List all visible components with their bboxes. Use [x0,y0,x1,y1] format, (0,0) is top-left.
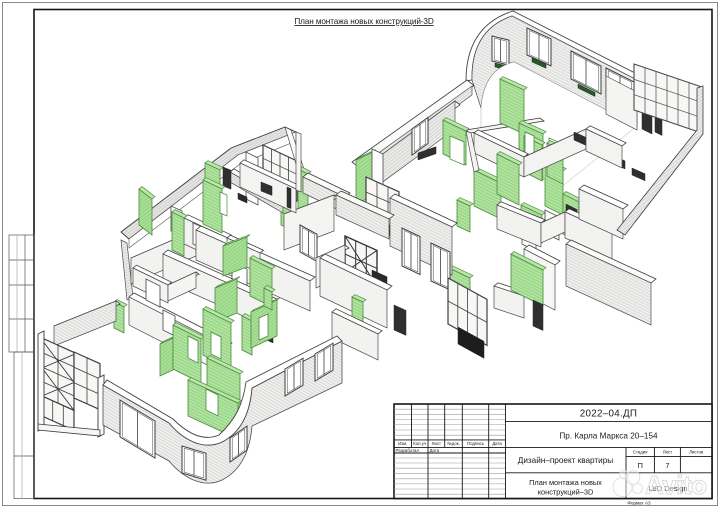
svg-text:Дата: Дата [430,448,440,453]
svg-text:План монтажа новых: План монтажа новых [529,478,602,487]
svg-text:Формат А3: Формат А3 [627,501,651,506]
svg-text:П: П [638,461,643,470]
svg-text:Лист: Лист [432,441,441,446]
svg-text:Стадия: Стадия [633,450,648,455]
svg-text:План монтажа новых конструкций: План монтажа новых конструкций-3D [294,17,434,26]
svg-text:Кол.уч: Кол.уч [413,441,426,446]
svg-text:2022–04.ДП: 2022–04.ДП [580,409,638,420]
svg-text:Лист: Лист [663,450,672,455]
svg-text:Разработал: Разработал [396,448,420,453]
svg-text:Подпись: Подпись [467,441,485,446]
svg-text:конструкций–3D: конструкций–3D [538,487,594,496]
svg-text:Дата: Дата [492,441,502,446]
svg-text:Дизайн–проект квартиры: Дизайн–проект квартиры [518,456,614,465]
svg-text:№док.: №док. [447,441,460,446]
svg-text:7: 7 [665,461,669,470]
svg-text:Avito: Avito [645,470,707,500]
svg-text:Изм.: Изм. [398,441,407,446]
svg-text:Листов: Листов [689,450,704,455]
svg-text:Пр. Карла Маркса 20–154: Пр. Карла Маркса 20–154 [559,431,658,440]
